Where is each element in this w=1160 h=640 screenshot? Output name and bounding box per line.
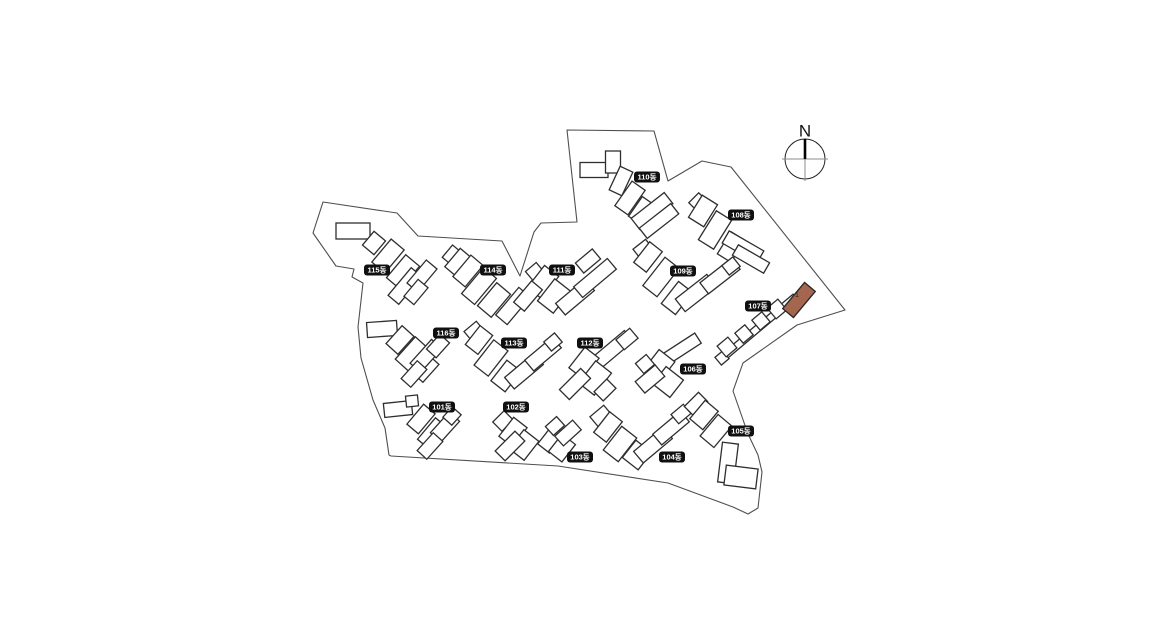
label-text: 106동	[683, 364, 703, 373]
footprint-section	[724, 465, 758, 489]
highlighted-unit-number: 1	[795, 290, 799, 299]
label-text: 108동	[731, 210, 751, 219]
label-text: 102동	[506, 402, 526, 411]
building-label-114[interactable]: 114동	[480, 265, 506, 276]
building-label-103[interactable]: 103동	[567, 452, 593, 463]
building-label-109[interactable]: 109동	[670, 266, 696, 277]
building-105[interactable]	[684, 392, 758, 489]
label-text: 112동	[581, 338, 600, 347]
footprint-section	[580, 163, 608, 178]
building-115[interactable]	[336, 223, 437, 305]
footprint-section	[405, 395, 418, 407]
building-label-107[interactable]: 107동	[745, 301, 771, 312]
building-label-113[interactable]: 113동	[501, 338, 527, 349]
building-label-104[interactable]: 104동	[659, 452, 685, 463]
label-text: 116동	[437, 328, 456, 337]
building-label-105[interactable]: 105동	[728, 426, 754, 437]
label-text: 101동	[432, 402, 452, 411]
building-114[interactable]	[442, 245, 542, 325]
building-111[interactable]	[525, 249, 616, 315]
label-text: 107동	[748, 301, 768, 310]
label-text: 113동	[505, 338, 524, 347]
building-102[interactable]	[493, 411, 539, 461]
site-plan: 1101동102동103동104동105동106동107동108동109동110…	[0, 0, 1160, 640]
label-text: 111동	[553, 265, 572, 274]
building-label-112[interactable]: 112동	[577, 338, 603, 349]
building-label-110[interactable]: 110동	[634, 172, 660, 183]
building-label-101[interactable]: 101동	[429, 402, 455, 413]
building-label-102[interactable]: 102동	[503, 402, 529, 413]
building-label-116[interactable]: 116동	[433, 328, 459, 339]
label-text: 103동	[570, 452, 590, 461]
footprint-section	[336, 223, 370, 239]
label-text: 109동	[673, 266, 693, 275]
compass: N	[782, 121, 828, 181]
building-label-106[interactable]: 106동	[680, 364, 706, 375]
footprint-section	[367, 320, 398, 337]
site-plan-canvas: 1101동102동103동104동105동106동107동108동109동110…	[0, 0, 1160, 640]
building-label-111[interactable]: 111동	[549, 265, 575, 276]
label-text: 115동	[368, 265, 387, 274]
building-113[interactable]	[464, 321, 562, 392]
compass-north-label: N	[799, 121, 811, 140]
building-label-115[interactable]: 115동	[364, 265, 390, 276]
building-label-108[interactable]: 108동	[728, 210, 754, 221]
building-110[interactable]	[580, 151, 679, 238]
label-text: 104동	[662, 452, 682, 461]
label-text: 105동	[731, 426, 751, 435]
label-text: 114동	[484, 265, 503, 274]
label-text: 110동	[638, 172, 657, 181]
